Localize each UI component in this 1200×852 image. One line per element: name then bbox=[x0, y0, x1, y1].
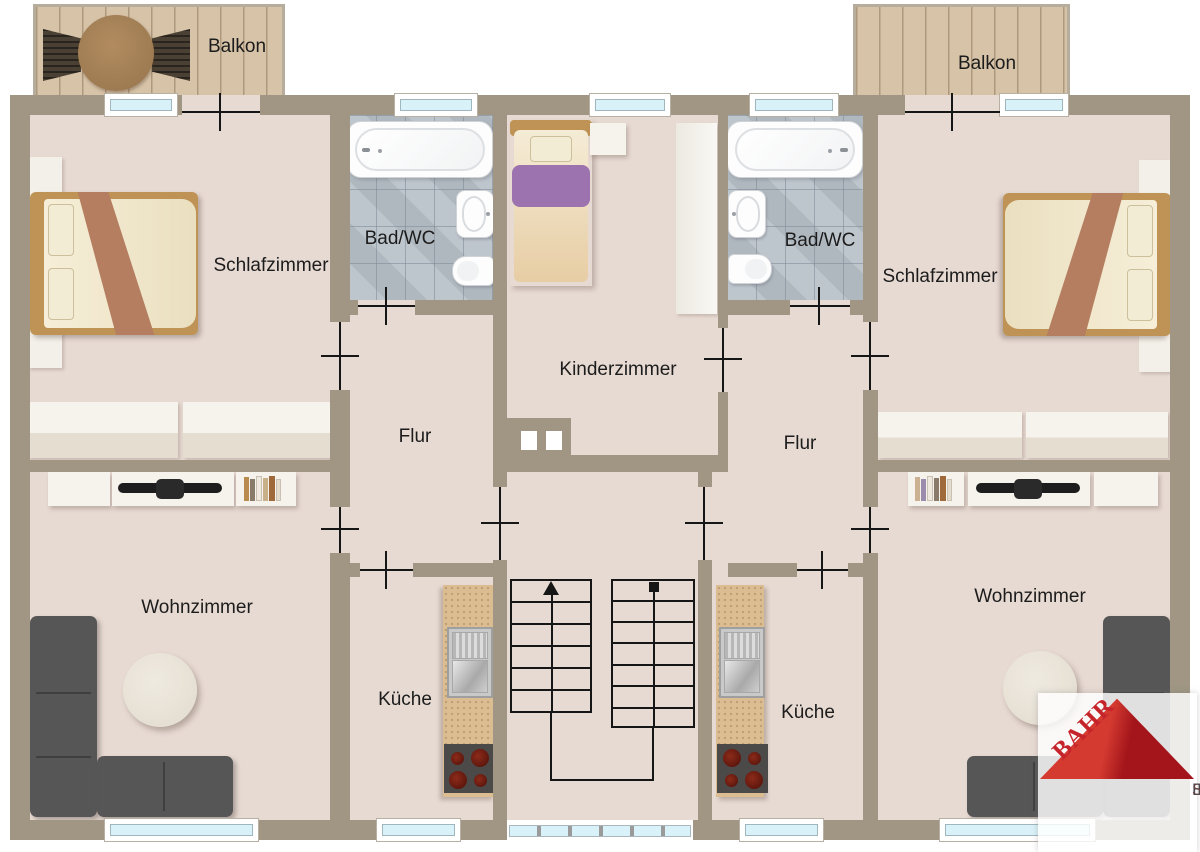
bathtub-icon bbox=[727, 121, 863, 178]
wall bbox=[30, 460, 330, 472]
books-icon bbox=[250, 479, 255, 501]
sofa-icon bbox=[30, 616, 97, 817]
books-icon bbox=[244, 477, 249, 501]
stairs-icon bbox=[611, 579, 695, 728]
window bbox=[394, 93, 478, 117]
dresser-icon bbox=[878, 412, 1022, 458]
tv-icon bbox=[1014, 479, 1042, 499]
window-glass bbox=[400, 99, 472, 111]
books-icon bbox=[927, 476, 933, 501]
room-label-bath-right: Bad/WC bbox=[785, 230, 856, 252]
bathtub-icon bbox=[347, 121, 493, 178]
floor-plan: Balkon Balkon bbox=[0, 0, 1200, 852]
wall bbox=[10, 95, 30, 840]
dresser-icon bbox=[28, 402, 178, 458]
door-tick bbox=[685, 522, 723, 524]
wall bbox=[698, 560, 712, 820]
room-label-bedroom-left: Schlafzimmer bbox=[213, 255, 328, 277]
tv-sideboard bbox=[112, 472, 234, 506]
room-label-bath-left: Bad/WC bbox=[365, 228, 436, 250]
stairs-path bbox=[550, 779, 654, 781]
tv-sideboard bbox=[968, 472, 1090, 506]
balcony-right: Balkon bbox=[853, 4, 1070, 95]
room-label-living-right: Wohnzimmer bbox=[974, 586, 1086, 608]
dresser-icon bbox=[183, 402, 335, 458]
door-line bbox=[869, 507, 871, 553]
single-bed-icon bbox=[510, 120, 592, 286]
balcony-left: Balkon bbox=[33, 4, 285, 95]
door-tick bbox=[219, 93, 221, 131]
room-label-living-left: Wohnzimmer bbox=[141, 597, 253, 619]
sink-icon bbox=[456, 190, 494, 238]
stove-icon bbox=[717, 744, 768, 793]
shelf-icon bbox=[590, 123, 626, 155]
door-tick bbox=[851, 528, 889, 530]
window bbox=[376, 818, 461, 842]
window-glass bbox=[1005, 99, 1063, 111]
double-bed-icon bbox=[1003, 193, 1171, 336]
door-tick bbox=[481, 522, 519, 524]
books-icon bbox=[269, 476, 275, 501]
books-icon bbox=[915, 477, 920, 501]
books-icon bbox=[940, 476, 946, 501]
wardrobe-icon bbox=[676, 123, 717, 314]
shaft-square bbox=[546, 431, 562, 450]
wall bbox=[863, 115, 878, 820]
brand-logo: BAHR IMMOBILIEN SERVICE BÄRBEL BAHR bbox=[1038, 693, 1197, 852]
sideboard-icon bbox=[48, 472, 110, 506]
door-opening bbox=[790, 300, 850, 315]
books-icon bbox=[947, 479, 952, 501]
window-glass bbox=[595, 99, 665, 111]
stairwell-window-band bbox=[507, 820, 693, 842]
bookshelf-icon bbox=[236, 472, 296, 506]
wall bbox=[718, 115, 728, 472]
stairs-path bbox=[550, 711, 552, 781]
sink-icon bbox=[728, 190, 766, 238]
balcony-table-icon bbox=[78, 15, 154, 91]
door-tick bbox=[821, 551, 823, 589]
window-glass bbox=[509, 825, 691, 837]
tv-icon bbox=[156, 479, 184, 499]
door-line bbox=[182, 111, 260, 113]
room-label-balcony-left: Balkon bbox=[208, 36, 266, 58]
window bbox=[589, 93, 671, 117]
stairs-icon bbox=[510, 579, 592, 713]
wall bbox=[507, 455, 721, 472]
window-glass bbox=[382, 824, 455, 836]
door-line bbox=[339, 507, 341, 553]
door-tick bbox=[851, 355, 889, 357]
door-tick bbox=[321, 355, 359, 357]
wall bbox=[493, 115, 507, 487]
kitchen-sink-icon bbox=[447, 627, 493, 698]
balcony-chair-icon bbox=[43, 29, 81, 81]
shaft-square bbox=[521, 431, 537, 450]
books-icon bbox=[256, 476, 262, 501]
books-icon bbox=[921, 479, 926, 501]
room-label-hall-left: Flur bbox=[399, 426, 432, 448]
dresser-icon bbox=[1026, 412, 1168, 458]
books-icon bbox=[263, 478, 268, 501]
double-bed-icon bbox=[30, 192, 198, 335]
door-tick bbox=[951, 93, 953, 131]
room-label-hall-right: Flur bbox=[784, 433, 817, 455]
window bbox=[739, 818, 824, 842]
toilet-icon bbox=[728, 254, 772, 284]
door-tick bbox=[704, 358, 742, 360]
window-glass bbox=[755, 99, 833, 111]
wall bbox=[495, 472, 507, 487]
room-label-kitchen-right: Küche bbox=[781, 702, 835, 724]
bookshelf-icon bbox=[908, 472, 964, 506]
room-label-kitchen-left: Küche bbox=[378, 689, 432, 711]
window bbox=[999, 93, 1069, 117]
window-glass bbox=[745, 824, 818, 836]
room-label-bedroom-right: Schlafzimmer bbox=[882, 266, 997, 288]
wall bbox=[493, 560, 507, 820]
door-tick bbox=[385, 551, 387, 589]
books-icon bbox=[276, 479, 281, 501]
stove-icon bbox=[444, 744, 495, 793]
door-line bbox=[722, 328, 724, 392]
window bbox=[104, 818, 259, 842]
window-glass bbox=[110, 99, 172, 111]
sideboard-icon bbox=[1094, 472, 1158, 506]
door-tick bbox=[321, 528, 359, 530]
balcony-chair-icon bbox=[152, 29, 190, 81]
wall bbox=[698, 472, 712, 487]
stairs-path bbox=[652, 728, 654, 781]
door-tick bbox=[385, 287, 387, 325]
coffee-table-icon bbox=[123, 653, 197, 727]
window bbox=[749, 93, 839, 117]
toilet-icon bbox=[452, 256, 494, 286]
wall bbox=[330, 115, 350, 820]
door-line bbox=[790, 305, 850, 307]
wall bbox=[878, 460, 1170, 472]
logo-line-baerbel-bahr: BÄRBEL BAHR bbox=[1192, 777, 1200, 827]
kitchen-sink-icon bbox=[719, 627, 765, 698]
door-tick bbox=[818, 287, 820, 325]
room-label-balcony-right: Balkon bbox=[958, 53, 1016, 75]
room-label-kids-room: Kinderzimmer bbox=[559, 359, 676, 381]
window-glass bbox=[110, 824, 253, 836]
window bbox=[104, 93, 178, 117]
books-icon bbox=[934, 478, 939, 501]
sofa-icon bbox=[97, 756, 233, 817]
